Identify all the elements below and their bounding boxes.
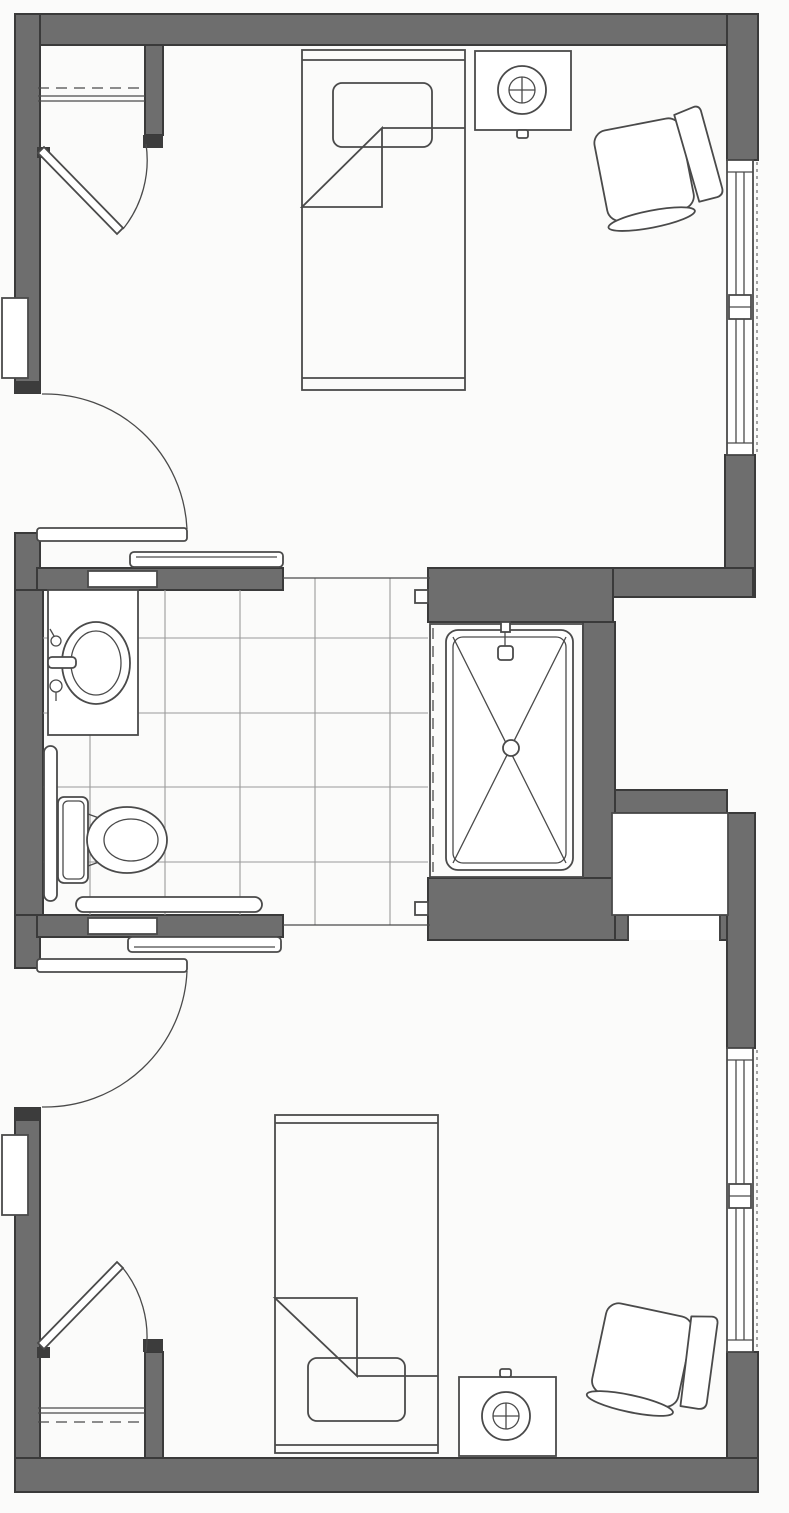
wall-bath-south (37, 915, 283, 937)
wall-bath-left (15, 590, 43, 915)
pocket-door-leaf (130, 552, 283, 567)
blanket-fold (275, 1298, 357, 1376)
wall-unit-bottom (2, 1135, 28, 1215)
floorplan-page (0, 0, 789, 1513)
wall-right-bottom (727, 1352, 758, 1458)
window-top (727, 160, 757, 455)
wall-right-top (727, 14, 758, 160)
lounge-chair-bottom (585, 1294, 725, 1427)
storage-niche (612, 813, 728, 940)
entry-door-bottom (37, 959, 187, 1107)
vanity-sink (48, 590, 138, 735)
grab-bar-vertical (44, 746, 57, 901)
window-bottom (727, 1048, 757, 1352)
wall-niche-bottom-left (615, 915, 628, 940)
wall-shower-south (428, 878, 615, 940)
shower-valve (501, 622, 510, 632)
closet-door-leaf (38, 147, 123, 234)
door-leaf (37, 959, 187, 972)
faucet-spout (48, 657, 76, 668)
wall-top (15, 14, 758, 45)
bed-frame (275, 1115, 438, 1453)
curtain-rod-knob-bottom (415, 902, 428, 915)
bed-frame (302, 50, 465, 390)
toilet-bowl (87, 807, 167, 873)
curtain-rod-knob-top (415, 590, 428, 603)
wall-shower-east (583, 622, 615, 878)
lounge-chair-top (589, 105, 727, 236)
wall-closet1-side (145, 45, 163, 135)
door-swing-arc (42, 394, 187, 529)
wall-north-band-right (613, 568, 753, 597)
grab-bar-horizontal (76, 897, 262, 912)
lamp-switch (517, 130, 528, 138)
wall-shower-north (428, 568, 613, 622)
blanket-fold (302, 128, 382, 207)
niche-box (612, 813, 728, 915)
closet-door-arc (123, 144, 147, 229)
wall-bottom (15, 1458, 758, 1492)
entry-door-top (37, 394, 187, 541)
niche-slot (629, 916, 719, 940)
entry1-jamb-block (15, 381, 40, 393)
wall-bath-north (37, 568, 283, 590)
bed-top (302, 50, 465, 390)
nightstand-bottom (459, 1369, 556, 1456)
nightstand-top (475, 51, 571, 138)
pocket-slot (88, 918, 157, 934)
bed-bottom (275, 1115, 438, 1453)
shower-drain (503, 740, 519, 756)
shower-head (498, 646, 513, 660)
closet-bottom (38, 1262, 147, 1422)
wall-right-lower-mid (727, 813, 755, 1048)
lamp-switch (500, 1369, 511, 1377)
closet-door-leaf (38, 1262, 123, 1349)
wall-niche-bottom-right (720, 915, 727, 940)
wall-niche-top (615, 790, 727, 813)
door-leaf (37, 528, 187, 541)
pocket-door-leaf (128, 937, 281, 952)
pocket-slot (88, 571, 157, 587)
roll-in-shower (415, 590, 583, 915)
toilet (58, 797, 167, 883)
wall-unit-top (2, 298, 28, 378)
door-swing-arc (42, 971, 187, 1107)
closet-top (38, 88, 147, 234)
floorplan-drawing (0, 0, 789, 1513)
entry2-jamb-block (15, 1108, 40, 1121)
wall-closet2-side (145, 1352, 163, 1458)
walls (15, 14, 758, 1492)
